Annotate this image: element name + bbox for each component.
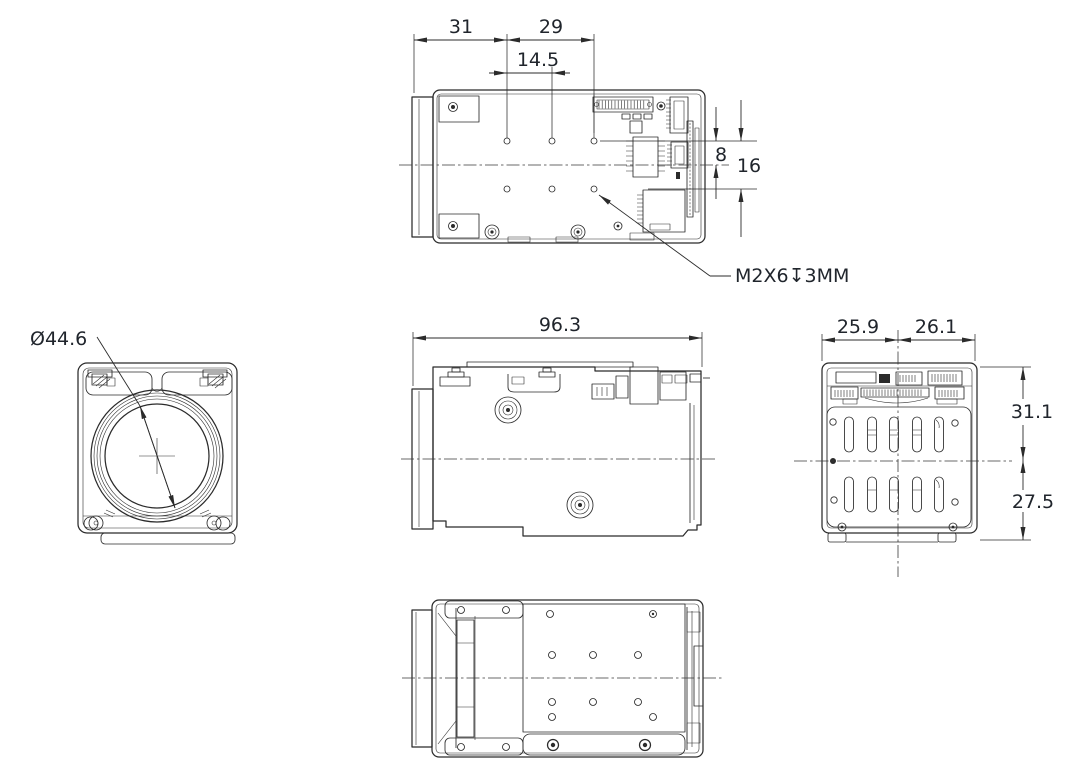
rear-view-body-outline [822, 363, 977, 533]
dim-side-96-3: 96.3 [413, 314, 702, 386]
dim-side-96-3-label: 96.3 [539, 314, 581, 336]
sd-module [630, 190, 685, 240]
front-view: Ø44.6 [30, 328, 237, 544]
engineering-drawing-canvas: 31 29 14.5 8 16 M2X6↧3MM [0, 0, 1078, 782]
screw-boss-lower [567, 492, 593, 518]
dim-top-29: 29 [507, 16, 594, 138]
side-connectors [666, 97, 688, 179]
screw-boss-upper [495, 397, 521, 423]
dim-rear-31-1-label: 31.1 [1011, 401, 1053, 423]
vent-slots [845, 417, 944, 512]
top-view-body-outline [433, 90, 705, 243]
rear-vent-plate [827, 407, 971, 527]
bottom-plate-holes [547, 611, 657, 721]
edge-connector-bars [687, 121, 699, 217]
side-view: 96.3 [401, 314, 716, 536]
rear-connectors [827, 371, 972, 404]
ic-chip [626, 137, 665, 177]
dim-rear-26-1: 26.1 [898, 316, 975, 361]
dim-top-16-label: 16 [737, 155, 761, 177]
dim-rear-25-9: 25.9 [822, 316, 898, 361]
rear-view: 25.9 26.1 31.1 27.5 [794, 316, 1054, 577]
bottom-mounting-plate [523, 604, 685, 732]
dim-rear-27-5: 27.5 [980, 460, 1054, 540]
dim-top-8-label: 8 [715, 144, 727, 166]
bottom-view [402, 600, 723, 757]
dim-top-8-16: 8 16 [600, 100, 761, 237]
dim-rear-26-1-label: 26.1 [915, 316, 957, 338]
bottom-strip [523, 734, 685, 755]
top-view: 31 29 14.5 8 16 M2X6↧3MM [399, 16, 849, 287]
dim-rear-31-1: 31.1 [980, 367, 1053, 460]
dim-top-29-label: 29 [539, 16, 563, 38]
board-connector [593, 97, 653, 112]
thread-callout-leader: M2X6↧3MM [599, 195, 849, 287]
corner-bracket-screws [439, 96, 479, 238]
dim-rear-27-5-label: 27.5 [1012, 491, 1054, 513]
front-top-lobes [86, 372, 232, 395]
dim-top-14-5-label: 14.5 [517, 49, 559, 71]
bottom-view-body-outline [432, 600, 703, 757]
thread-callout-label: M2X6↧3MM [735, 265, 849, 287]
lens-barrel-top [412, 97, 433, 237]
rear-plate-holes [830, 419, 958, 505]
pcb-pads [594, 95, 652, 133]
front-bottom-details [83, 510, 235, 544]
dim-top-31-label: 31 [449, 16, 473, 38]
side-top-components [440, 367, 710, 404]
dim-top-31: 31 [414, 16, 507, 138]
side-view-body-outline [433, 367, 701, 536]
dim-top-14-5: 14.5 [489, 49, 570, 138]
dim-rear-25-9-label: 25.9 [837, 316, 879, 338]
lens-barrel-bottom [412, 610, 432, 747]
front-corner-screws [88, 370, 227, 388]
rear-edge-connectors [687, 607, 703, 750]
dim-front-diameter-label: Ø44.6 [30, 328, 87, 350]
